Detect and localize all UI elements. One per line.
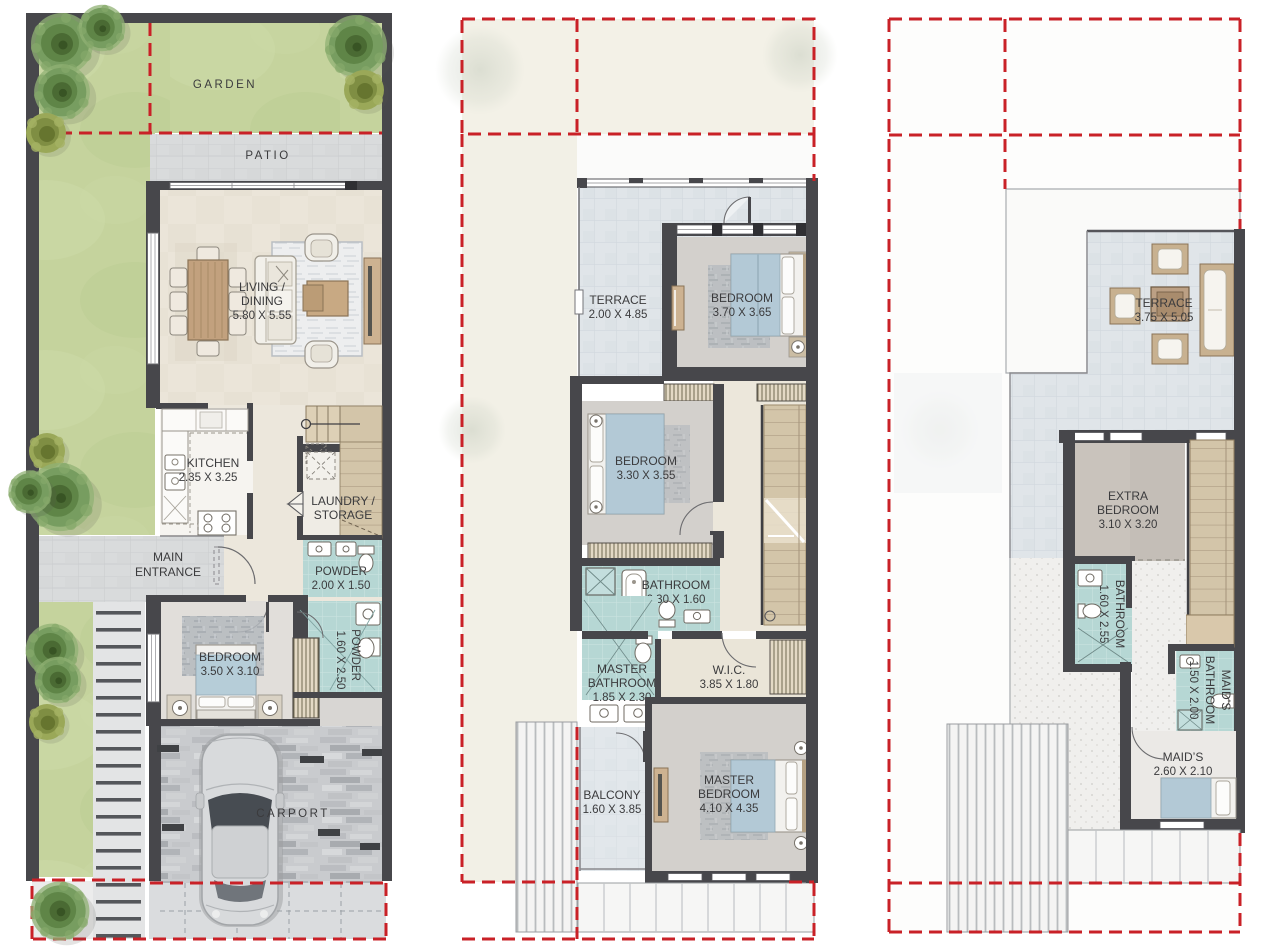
svg-text:MAIN: MAIN [153, 550, 183, 564]
svg-text:MAID’S: MAID’S [1219, 670, 1233, 711]
svg-text:BEDROOM: BEDROOM [615, 454, 677, 468]
svg-text:CARPORT: CARPORT [256, 808, 330, 820]
svg-text:2.60 X 2.10: 2.60 X 2.10 [1154, 766, 1213, 778]
svg-text:1.60 X 3.85: 1.60 X 3.85 [583, 804, 642, 816]
svg-text:3.70 X 3.65: 3.70 X 3.65 [713, 307, 772, 319]
svg-text:LAUNDRY /: LAUNDRY / [311, 494, 375, 508]
svg-text:3.75 X 5.05: 3.75 X 5.05 [1135, 312, 1194, 324]
svg-text:GARDEN: GARDEN [193, 79, 257, 91]
svg-text:1.60 X 2.55: 1.60 X 2.55 [1097, 585, 1109, 644]
svg-text:BEDROOM: BEDROOM [698, 787, 760, 801]
svg-text:STORAGE: STORAGE [314, 508, 372, 522]
svg-text:2.00 X 1.50: 2.00 X 1.50 [312, 580, 371, 592]
svg-text:BEDROOM: BEDROOM [199, 650, 261, 664]
svg-text:MASTER: MASTER [704, 773, 754, 787]
svg-text:LIVING /: LIVING / [239, 280, 286, 294]
svg-text:BATHROOM: BATHROOM [1113, 580, 1127, 648]
svg-text:TERRACE: TERRACE [589, 293, 646, 307]
svg-text:2.35 X 3.25: 2.35 X 3.25 [179, 472, 238, 484]
svg-text:POWDER: POWDER [349, 629, 361, 681]
svg-text:1.60 X 2.50: 1.60 X 2.50 [334, 631, 346, 690]
svg-text:BEDROOM: BEDROOM [711, 291, 773, 305]
svg-text:W.I.C.: W.I.C. [713, 663, 746, 677]
svg-text:ENTRANCE: ENTRANCE [135, 565, 201, 579]
svg-text:3.85 X 1.80: 3.85 X 1.80 [700, 679, 759, 691]
svg-text:BATHROOM: BATHROOM [642, 578, 710, 592]
svg-text:BATHROOM: BATHROOM [588, 676, 656, 690]
svg-text:MASTER: MASTER [597, 662, 647, 676]
svg-text:1.85 X 2.30: 1.85 X 2.30 [593, 692, 652, 704]
svg-text:PATIO: PATIO [245, 150, 290, 162]
svg-text:3.10 X 3.20: 3.10 X 3.20 [1099, 519, 1158, 531]
svg-text:BEDROOM: BEDROOM [1097, 503, 1159, 517]
svg-text:4.10 X 4.35: 4.10 X 4.35 [700, 803, 759, 815]
svg-text:KITCHEN: KITCHEN [187, 456, 240, 470]
svg-text:MAID’S: MAID’S [1163, 750, 1204, 764]
svg-text:BATHROOM: BATHROOM [1203, 656, 1217, 724]
svg-text:BALCONY: BALCONY [583, 788, 640, 802]
svg-text:3.50 X 3.10: 3.50 X 3.10 [201, 666, 260, 678]
svg-text:EXTRA: EXTRA [1108, 489, 1148, 503]
svg-text:DINING: DINING [241, 294, 283, 308]
svg-text:3.30 X 3.55: 3.30 X 3.55 [617, 470, 676, 482]
svg-text:1.50 X 2.00: 1.50 X 2.00 [1187, 661, 1199, 720]
svg-text:POWDER: POWDER [315, 566, 367, 578]
svg-text:TERRACE: TERRACE [1135, 296, 1192, 310]
svg-text:5.80 X 5.55: 5.80 X 5.55 [233, 310, 292, 322]
svg-text:2.00 X 4.85: 2.00 X 4.85 [589, 309, 648, 321]
